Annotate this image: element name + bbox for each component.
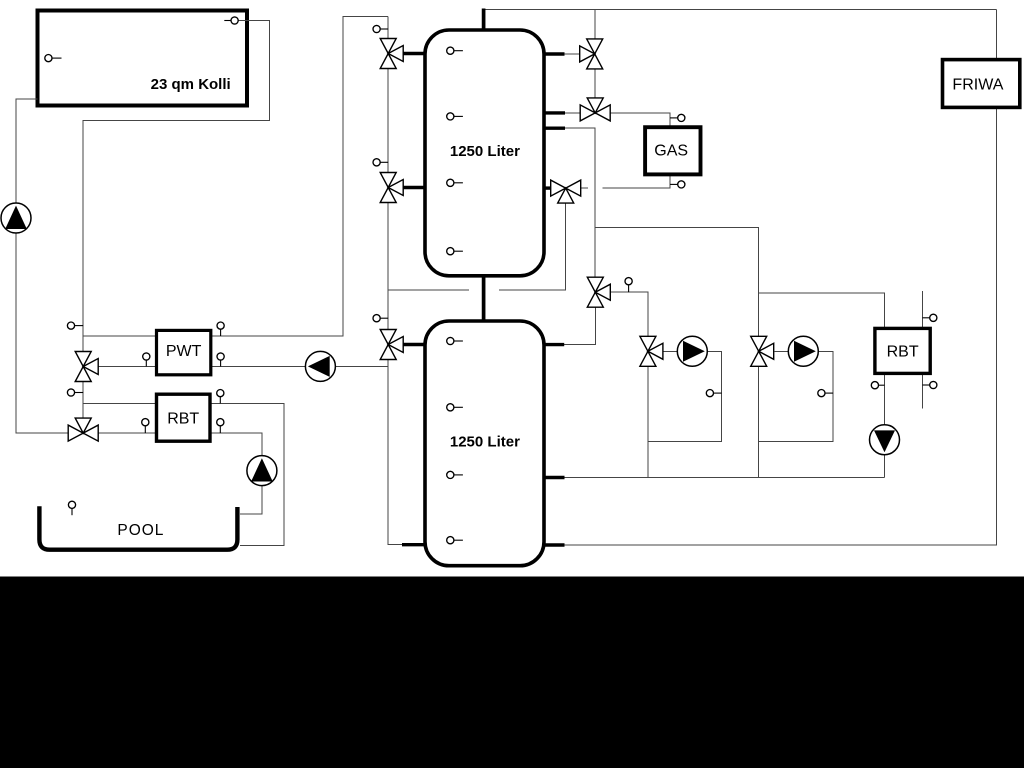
svg-text:GAS: GAS [654,143,688,160]
svg-text:PWT: PWT [166,343,202,360]
svg-text:1250 Liter: 1250 Liter [450,433,520,450]
svg-text:FRIWA: FRIWA [952,76,1003,93]
svg-text:1250 Liter: 1250 Liter [450,143,520,160]
svg-text:POOL: POOL [117,522,164,539]
svg-text:RBT: RBT [887,344,919,361]
svg-text:23 qm Kolli: 23 qm Kolli [151,76,231,93]
svg-text:RBT: RBT [167,410,199,427]
